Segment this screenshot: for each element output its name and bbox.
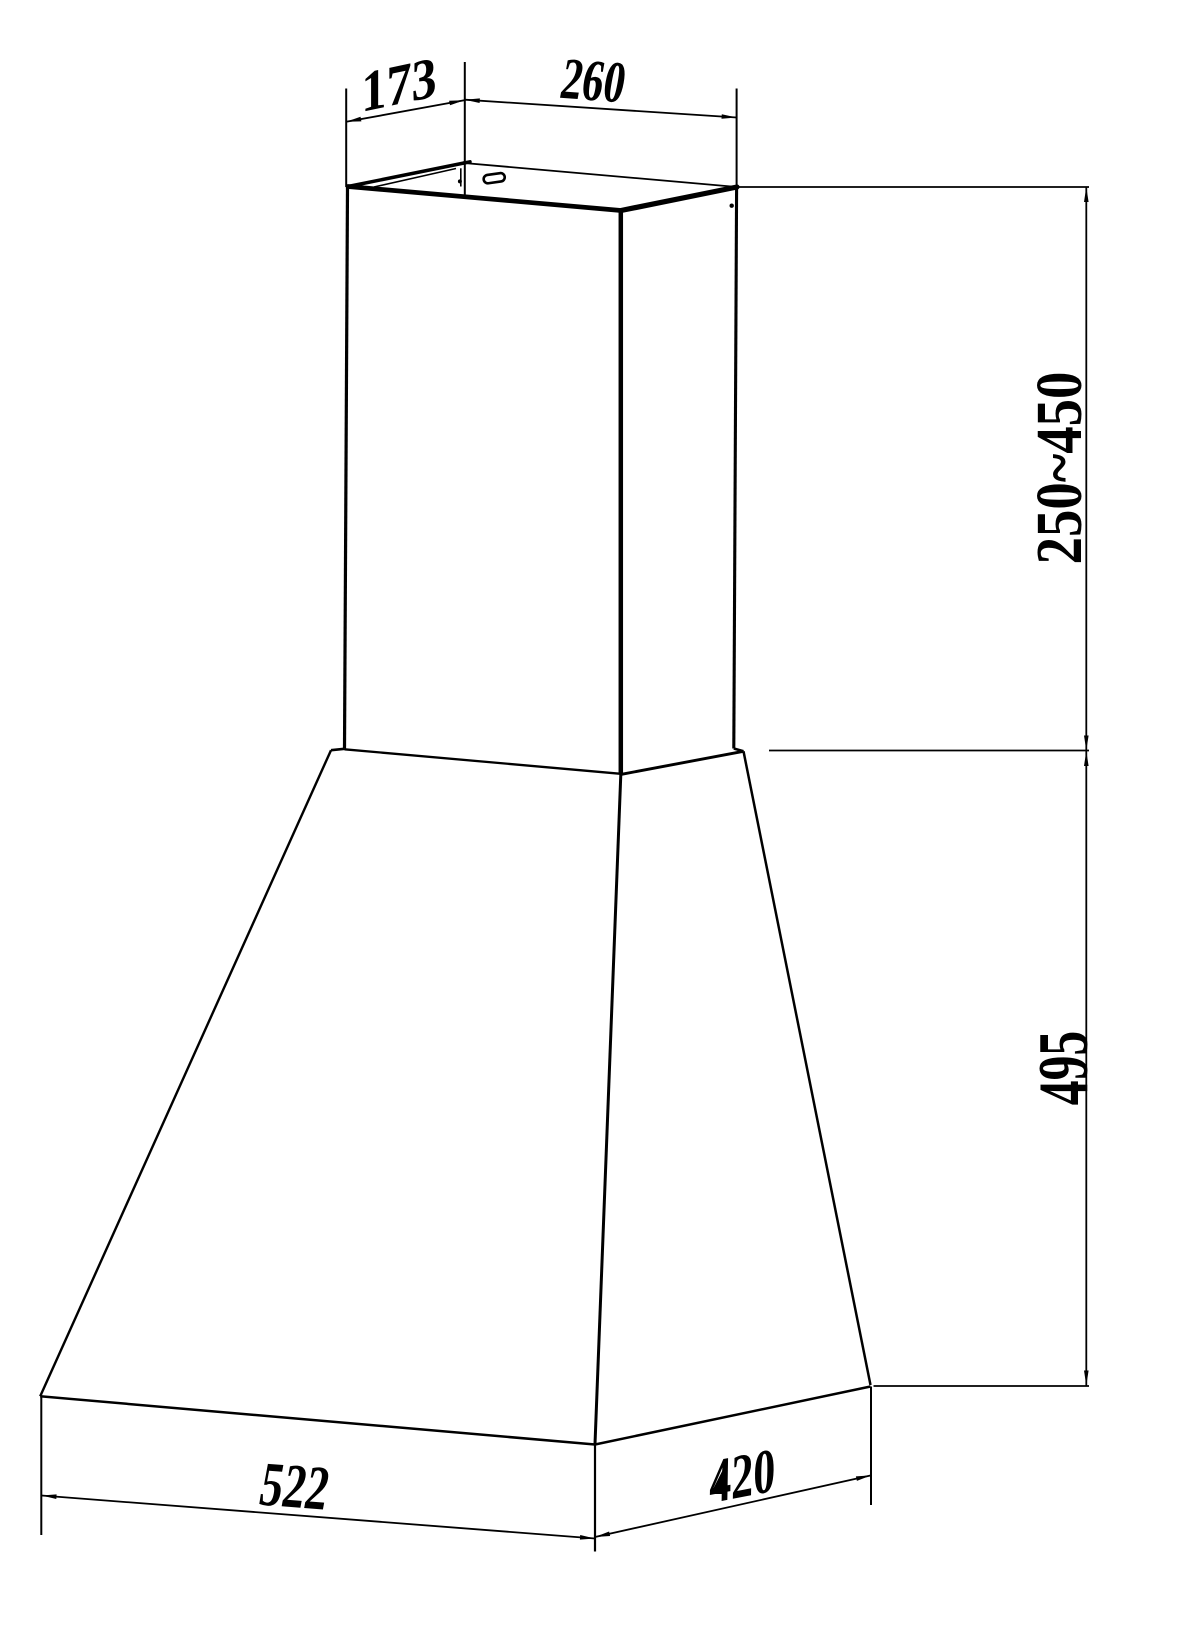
svg-text:420: 420 xyxy=(709,1434,776,1517)
svg-text:495: 495 xyxy=(1024,1031,1103,1106)
svg-text:250~450: 250~450 xyxy=(1023,372,1096,565)
svg-text:522: 522 xyxy=(255,1449,335,1523)
svg-text:260: 260 xyxy=(556,47,631,116)
